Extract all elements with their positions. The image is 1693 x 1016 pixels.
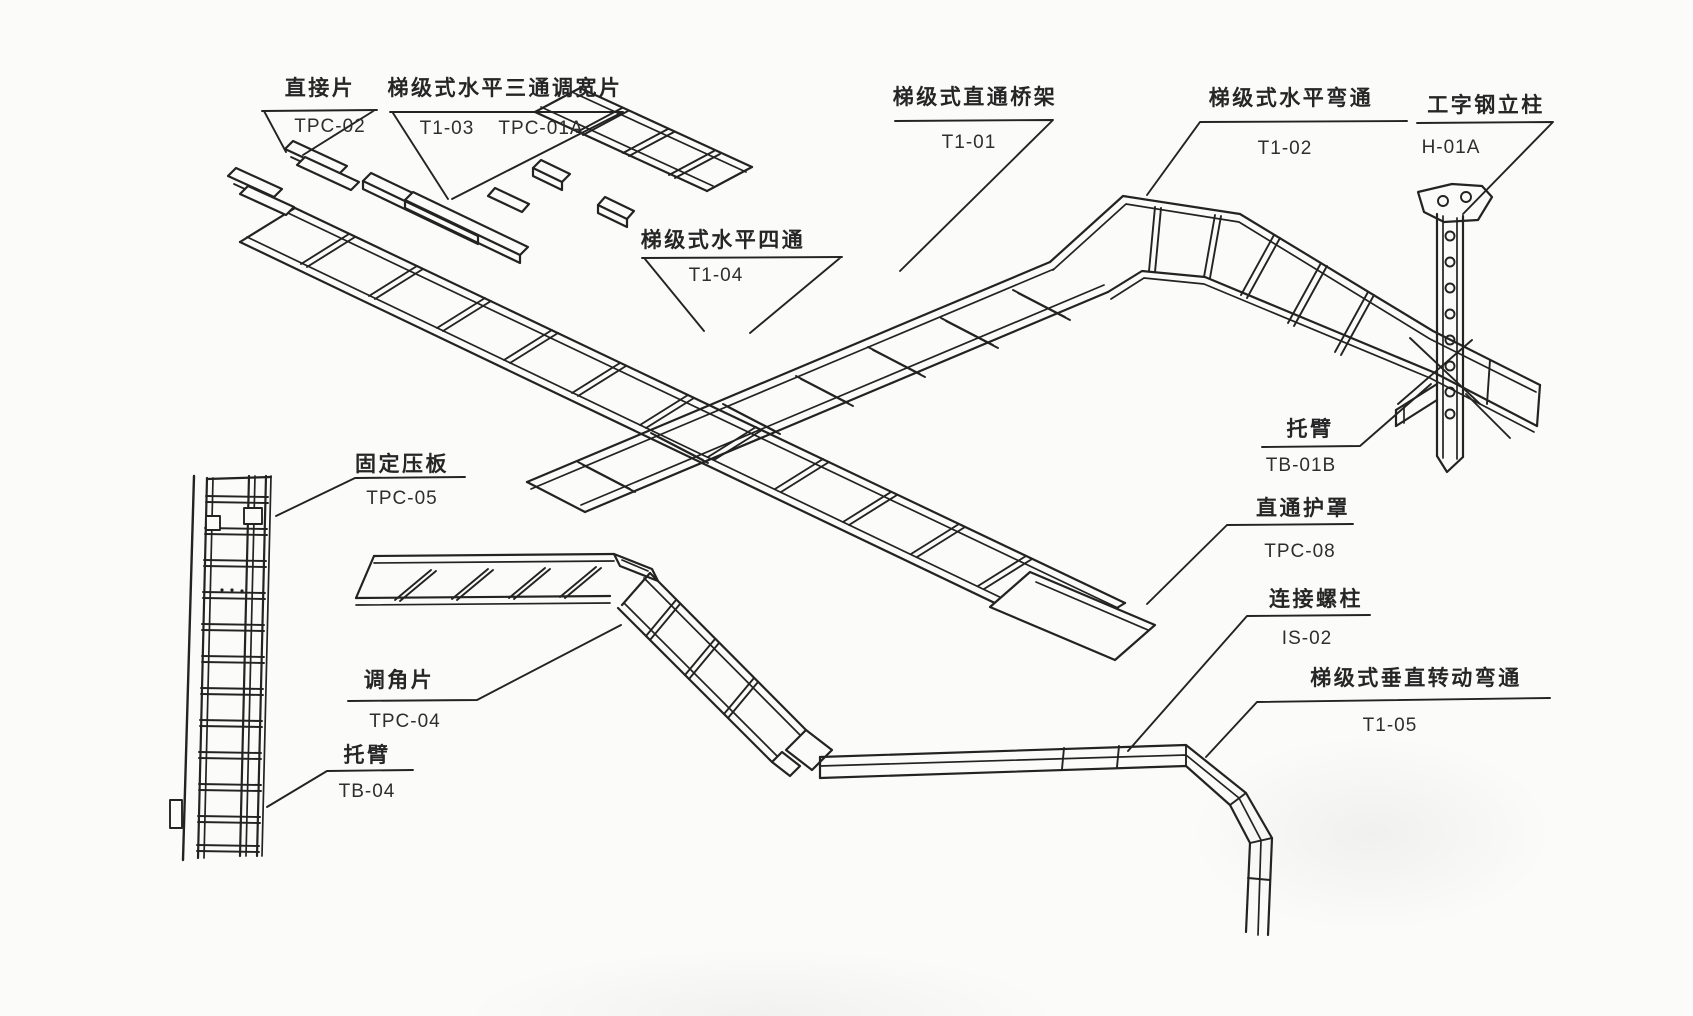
callout-bracket-left-label: 托臂 (344, 739, 391, 769)
callout-connector-strip-label: 直接片 (285, 72, 356, 102)
callout-cross-code: T1-04 (689, 265, 744, 287)
wall-ladder (170, 476, 271, 860)
callout-fixing-clamp-code: TPC-05 (366, 488, 437, 510)
tray-main-diagonal (240, 208, 1125, 638)
callout-vertical-bend-label: 梯级式垂直转动弯通 (1310, 662, 1522, 692)
callout-straight-tray-label: 梯级式直通桥架 (893, 81, 1058, 111)
callout-horizontal-bend-label: 梯级式水平弯通 (1209, 82, 1374, 112)
callout-vertical-bend-code: T1-05 (1363, 715, 1418, 737)
callout-cover-code: TPC-08 (1264, 541, 1335, 563)
callout-bracket-left-code: TB-04 (339, 781, 396, 803)
segment-joints (1062, 745, 1272, 880)
connector-strip-parts (228, 141, 359, 215)
bend-horizontal-t102 (1050, 196, 1540, 432)
tray-a-rungs (301, 234, 1032, 589)
callout-angle-piece-label: 调角片 (364, 664, 435, 694)
callout-cover-label: 直通护罩 (1256, 492, 1350, 522)
cable-tray-system-diagram: 直接片 TPC-02 梯级式水平三通调宽片 T1-03 TPC-01A 梯级式水… (0, 0, 1693, 1016)
callout-tee-widener-code-2: TPC-01A (498, 118, 583, 140)
callout-horizontal-bend-code: T1-02 (1258, 138, 1313, 160)
tray-low-with-vertical-bend (820, 745, 1272, 935)
angle-transition-f (614, 554, 832, 776)
tray-straight-t101 (527, 262, 1108, 512)
column-x-brace (1398, 338, 1510, 438)
callout-steel-column-label: 工字钢立柱 (1427, 89, 1545, 119)
tray-b-rungs (578, 290, 1070, 492)
cover-plate (990, 572, 1155, 660)
callout-steel-column-code: H-01A (1422, 137, 1481, 159)
callout-tee-widener-code-1: T1-03 (420, 118, 475, 140)
callout-straight-tray-code: T1-01 (942, 132, 997, 154)
tray-horizontal-e (356, 554, 614, 605)
callout-fixing-clamp-label: 固定压板 (355, 448, 449, 478)
callout-bracket-right-label: 托臂 (1287, 413, 1334, 443)
callout-cross-label: 梯级式水平四通 (641, 224, 806, 254)
callout-connect-stud-label: 连接螺柱 (1269, 583, 1363, 613)
callout-connect-stud-code: IS-02 (1282, 628, 1332, 650)
callout-angle-piece-code: TPC-04 (369, 711, 440, 733)
bracket-tb01b (1396, 384, 1437, 426)
callout-connector-strip-code: TPC-02 (294, 116, 365, 138)
callout-tee-widener-label: 梯级式水平三通调宽片 (388, 72, 623, 102)
callout-bracket-right-code: TB-01B (1266, 455, 1336, 477)
